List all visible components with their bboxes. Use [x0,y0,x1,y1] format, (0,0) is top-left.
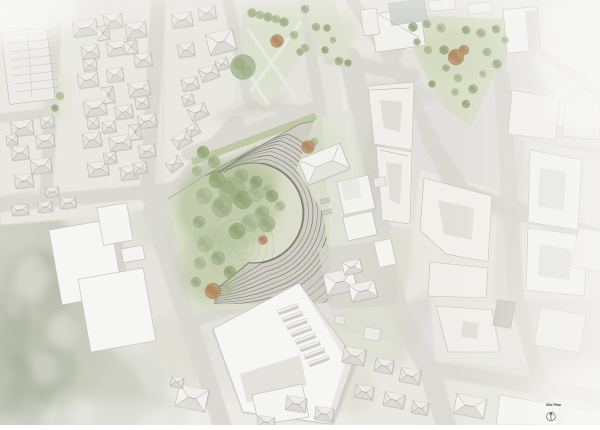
svg-text:Site Plan: Site Plan [546,403,561,407]
